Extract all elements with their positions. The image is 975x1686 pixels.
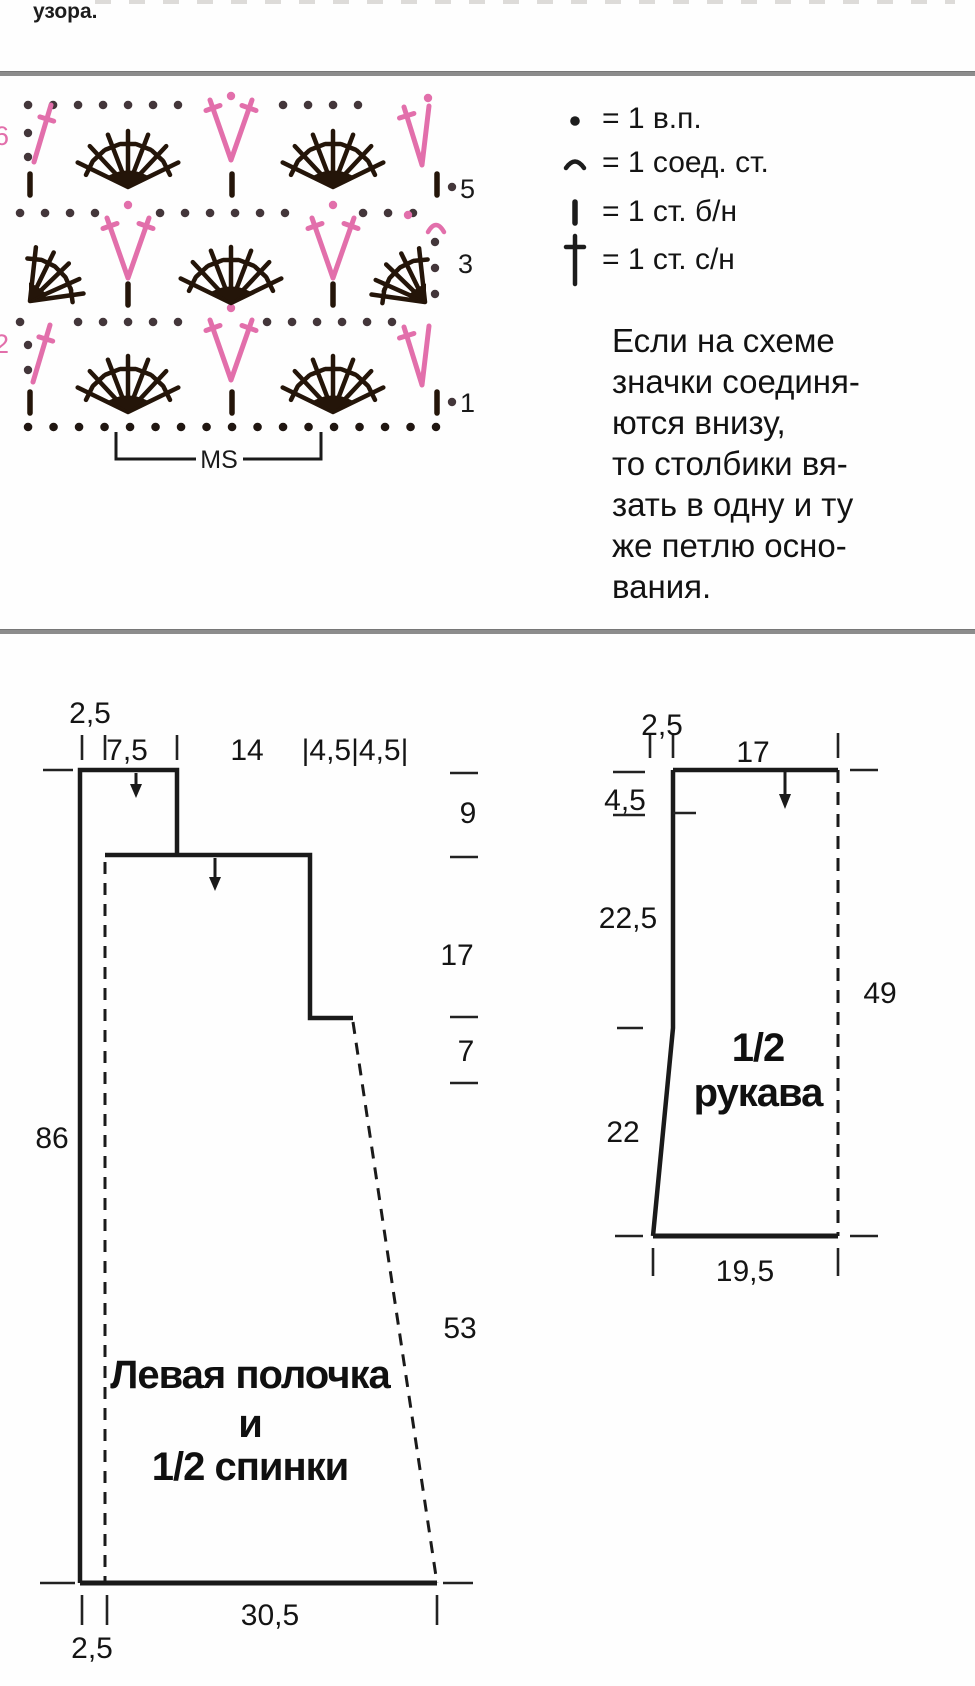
sleeve-outline bbox=[653, 770, 838, 1236]
pattern-text-fragment: узора. bbox=[33, 0, 98, 24]
measure-top-2-5: 2,5 bbox=[641, 709, 683, 742]
slip-stitch-icon bbox=[556, 148, 594, 178]
legend-row-chain: = 1 в.п. bbox=[556, 102, 702, 136]
measure-armhole-4-5: |4,5|4,5| bbox=[302, 734, 409, 767]
pattern-page: узора. bbox=[0, 0, 975, 1686]
turning-dc-icon bbox=[33, 325, 53, 382]
note-line: зать в одну и ту bbox=[612, 484, 952, 525]
instruction-note: Если на схеме значки соединя- ются внизу… bbox=[612, 320, 952, 607]
fan-stitch-icon bbox=[283, 356, 384, 412]
cropped-text-remnant bbox=[95, 0, 955, 4]
note-line: то столбики вя- bbox=[612, 443, 952, 484]
piece-title-line: Левая полочка bbox=[110, 1353, 391, 1397]
v-stitch-icon bbox=[206, 100, 256, 160]
schematic-left-front-back: 2,5 7,5 14 |4,5|4,5| 9 17 7 86 53 30,5 2… bbox=[20, 640, 500, 1686]
legend-row-double-crochet: = 1 ст. с/н bbox=[556, 232, 735, 288]
measure-side-53: 53 bbox=[443, 1312, 476, 1345]
measure-height-49: 49 bbox=[863, 977, 896, 1010]
measure-side-17: 17 bbox=[440, 939, 473, 972]
legend-row-slip-stitch: = 1 соед. ст. bbox=[556, 146, 769, 180]
piece-title-line: 1/2 спинки bbox=[152, 1445, 348, 1489]
measure-top-2-5: 2,5 bbox=[69, 697, 111, 730]
fan-stitch-icon bbox=[181, 247, 282, 303]
divider-middle bbox=[0, 629, 975, 634]
row-label-2: 2 bbox=[0, 329, 9, 359]
note-line: ются внизу, bbox=[612, 402, 952, 443]
legend-text: = 1 соед. ст. bbox=[602, 146, 769, 180]
turning-dc-icon bbox=[34, 105, 54, 162]
measure-shoulder-7-5: 7,5 bbox=[106, 734, 148, 767]
half-fan-stitch-icon bbox=[27, 247, 83, 302]
slip-stitch-icon bbox=[428, 225, 444, 232]
row-label-5: 5 bbox=[460, 174, 475, 204]
schematic-sleeve: 2,5 17 4,5 22,5 22 49 19,5 1/2 рукава bbox=[540, 640, 975, 1340]
fan-stitch-icon bbox=[78, 131, 179, 187]
row-label-1: 1 bbox=[460, 388, 475, 418]
measure-left-22: 22 bbox=[606, 1116, 639, 1149]
note-line: значки соединя- bbox=[612, 361, 952, 402]
row-label-3: 3 bbox=[458, 249, 473, 279]
half-v-stitch-icon bbox=[400, 326, 430, 385]
half-fan-stitch-icon bbox=[372, 248, 428, 303]
v-stitch-icon bbox=[103, 218, 153, 278]
row-label-6: 6 bbox=[0, 121, 9, 151]
note-line: вания. bbox=[612, 566, 952, 607]
measure-left-22-5: 22,5 bbox=[599, 902, 657, 935]
half-v-stitch-icon bbox=[400, 106, 430, 165]
legend-row-single-crochet: = 1 ст. б/н bbox=[556, 195, 737, 229]
piece-title-line: и bbox=[238, 1402, 262, 1446]
sleeve-title-line: 1/2 bbox=[732, 1026, 785, 1070]
legend-text: = 1 в.п. bbox=[602, 102, 702, 136]
side-dashed-line bbox=[353, 1022, 437, 1583]
measure-height-86: 86 bbox=[35, 1122, 68, 1155]
note-line: Если на схеме bbox=[612, 320, 952, 361]
legend-text: = 1 ст. с/н bbox=[602, 243, 735, 277]
measure-side-9: 9 bbox=[460, 797, 477, 830]
measure-left-4-5: 4,5 bbox=[604, 784, 646, 817]
crochet-stitch-chart: MS 6 5 3 2 1 bbox=[0, 85, 500, 485]
divider-top bbox=[0, 71, 975, 76]
measure-top-17: 17 bbox=[736, 736, 769, 769]
fan-stitch-icon bbox=[283, 131, 384, 187]
measure-neck-14: 14 bbox=[230, 734, 263, 767]
measure-bottom-2-5: 2,5 bbox=[71, 1632, 113, 1665]
measure-bottom-19-5: 19,5 bbox=[716, 1255, 774, 1288]
v-stitch-icon bbox=[308, 218, 358, 278]
v-stitch-icon bbox=[206, 320, 256, 380]
measure-bottom-30-5: 30,5 bbox=[241, 1599, 299, 1632]
single-crochet-icon bbox=[556, 197, 594, 227]
double-crochet-icon bbox=[556, 232, 594, 288]
note-line: же петлю осно- bbox=[612, 525, 952, 566]
sleeve-direction-arrow bbox=[779, 772, 791, 809]
fan-stitch-icon bbox=[78, 356, 179, 412]
measure-side-7: 7 bbox=[458, 1035, 475, 1068]
legend-text: = 1 ст. б/н bbox=[602, 195, 737, 229]
sleeve-title-line: рукава bbox=[694, 1071, 824, 1115]
chain-dot-icon bbox=[556, 104, 594, 134]
ms-label: MS bbox=[200, 446, 238, 474]
